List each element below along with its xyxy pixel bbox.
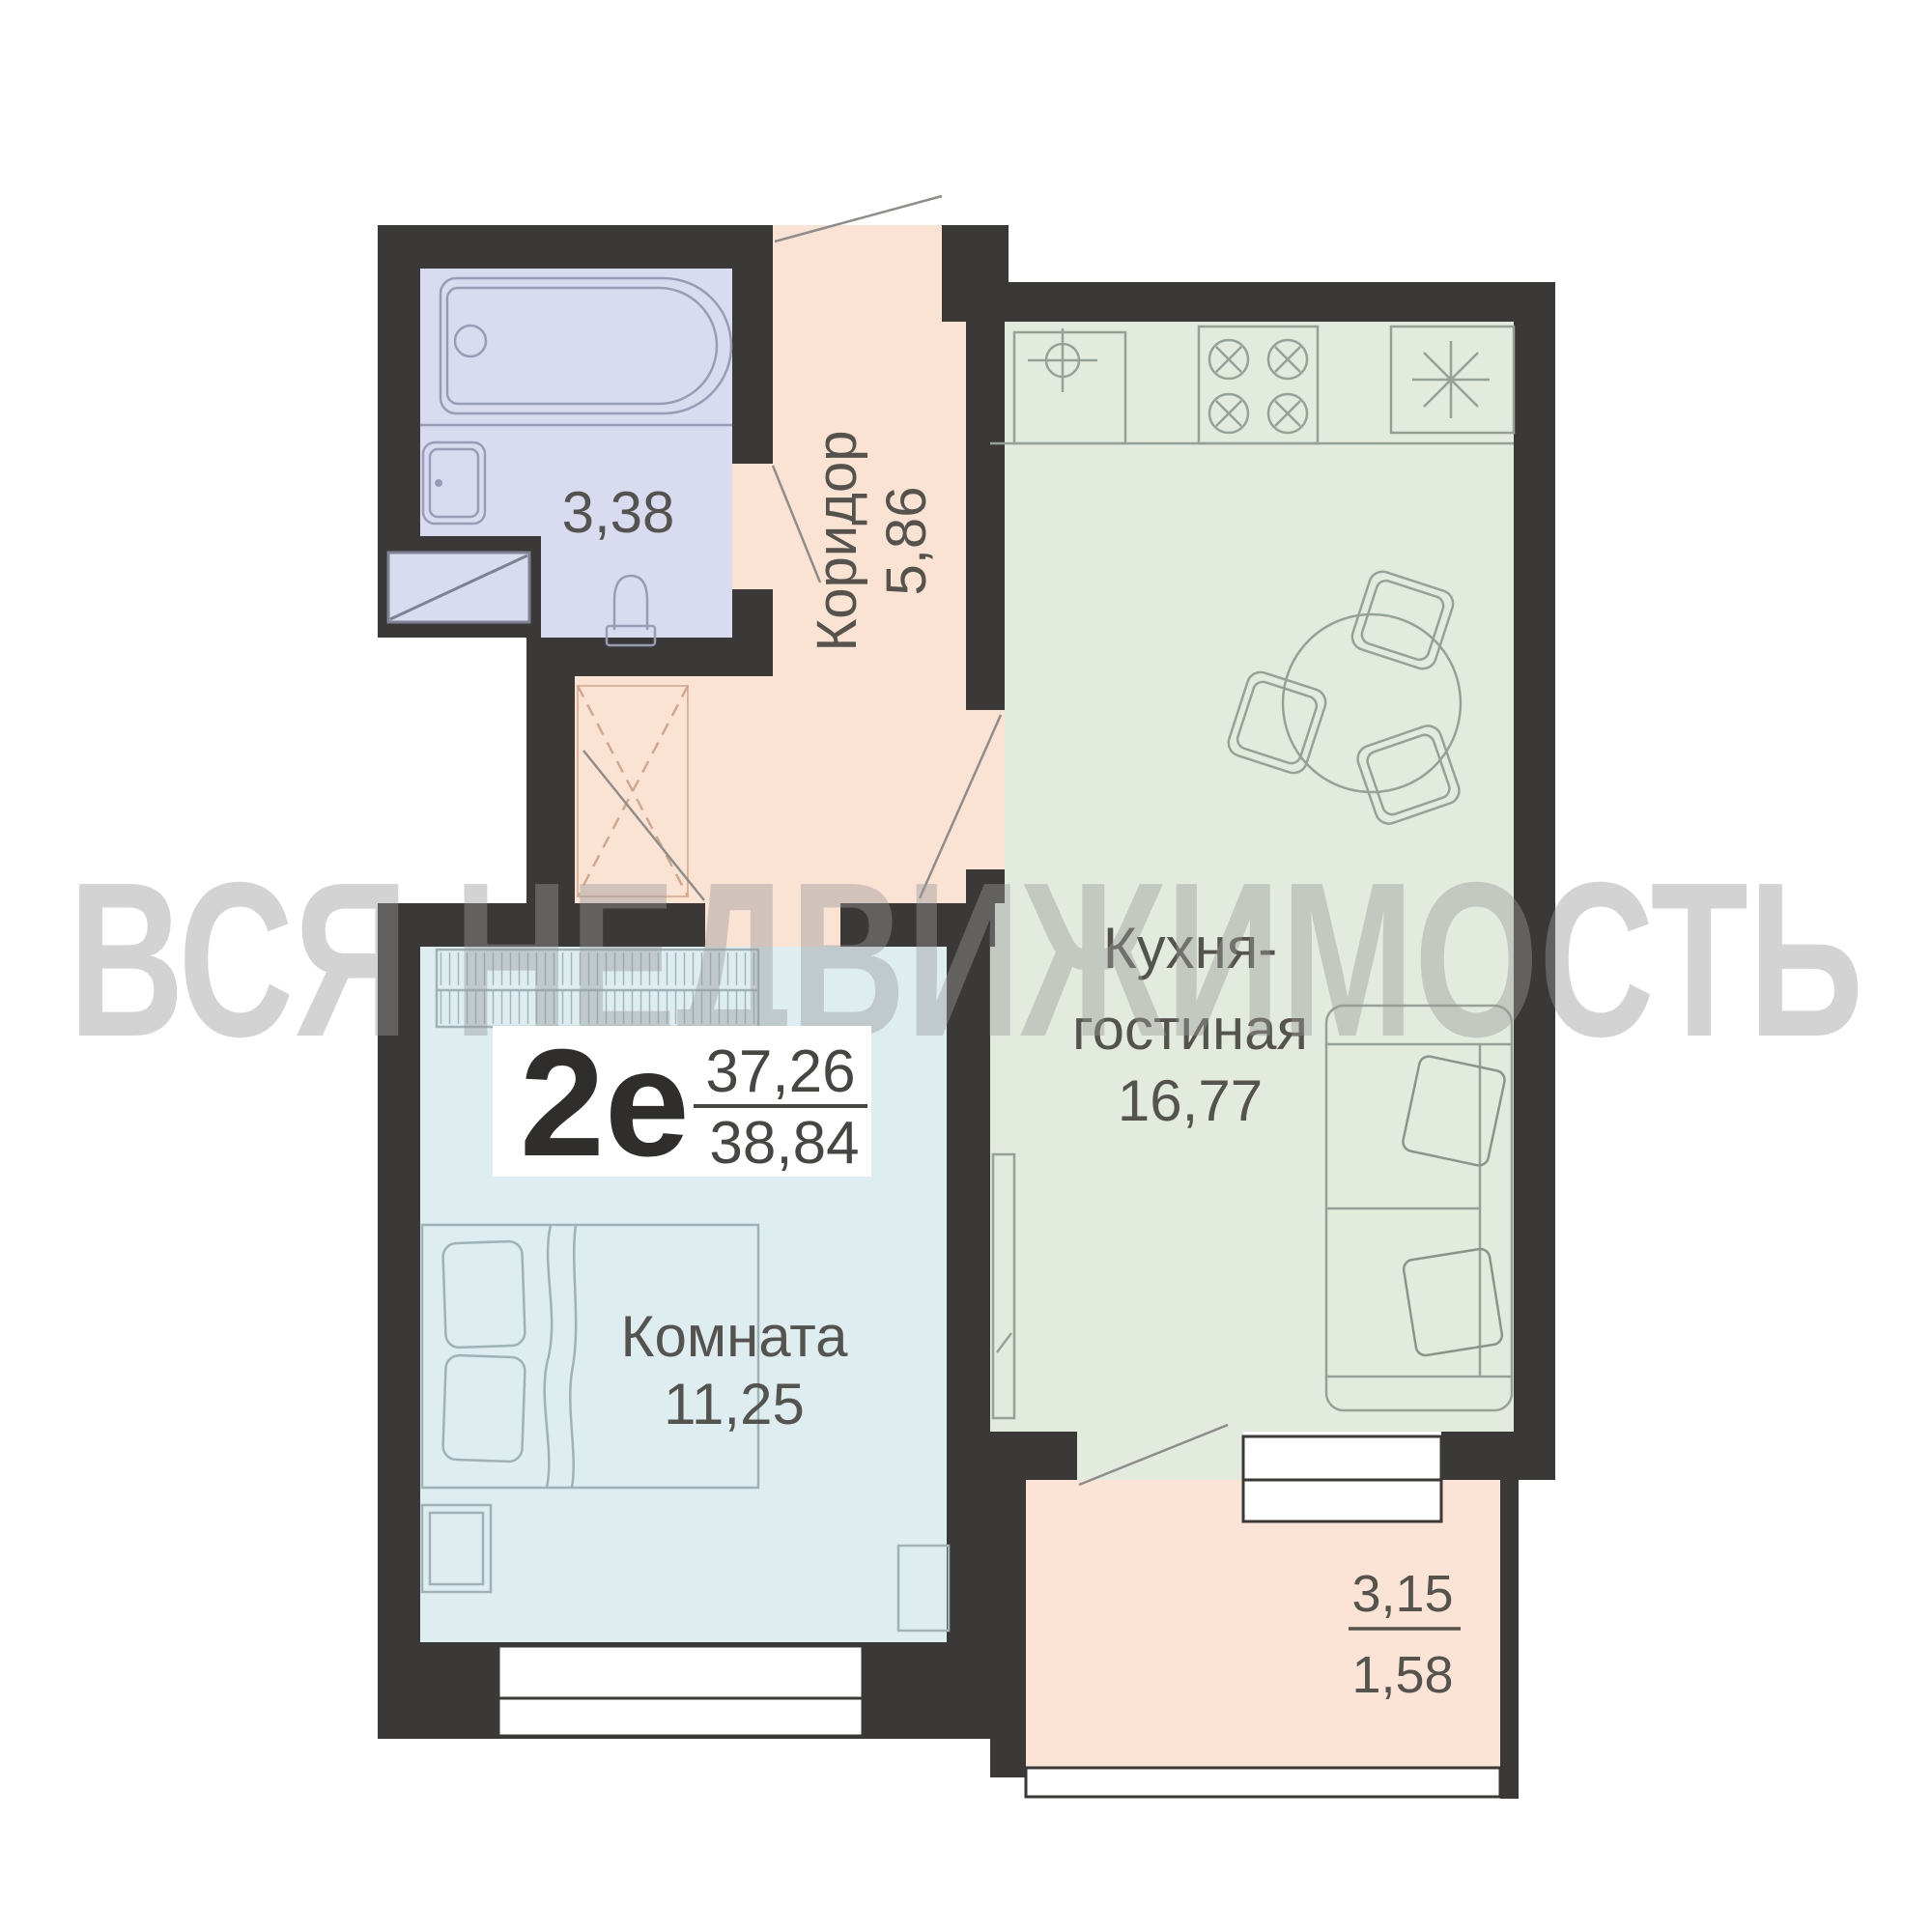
fridge-snowflake-icon: [1412, 341, 1490, 418]
floorplan-page: 3,38 Коридор 5,86 Кухня- гостиная 16,77 …: [0, 0, 1932, 1932]
corridor-name-label: Коридор: [806, 430, 868, 651]
bathroom-area-label: 3,38: [562, 480, 675, 545]
balcony-door-opening: [1077, 1432, 1243, 1480]
area-living-label: 37,26: [705, 1038, 855, 1105]
balcony-area-full-label: 3,15: [1351, 1565, 1453, 1623]
floorplan-svg: 3,38 Коридор 5,86 Кухня- гостиная 16,77 …: [0, 0, 1932, 1932]
balcony-window: [1026, 1768, 1500, 1797]
area-total-label: 38,84: [709, 1110, 859, 1177]
apartment-badge: 2е 37,26 38,84: [493, 1018, 871, 1188]
watermark-text: ВСЯ НЕДВИЖИМОСТЬ: [69, 838, 1863, 1083]
sink-faucet-dot: [435, 479, 442, 487]
balcony-floor: [1026, 1480, 1500, 1770]
bathroom-door-opening: [732, 464, 773, 589]
room-area-label: 11,25: [664, 1372, 805, 1436]
entrance-door-opening: [773, 225, 942, 269]
room-window: [498, 1646, 863, 1736]
room-name-label: Комната: [621, 1304, 849, 1369]
balcony-area-reduced-label: 1,58: [1351, 1646, 1453, 1704]
corridor-area-label: 5,86: [875, 487, 938, 596]
apartment-type-label: 2е: [520, 1018, 690, 1188]
